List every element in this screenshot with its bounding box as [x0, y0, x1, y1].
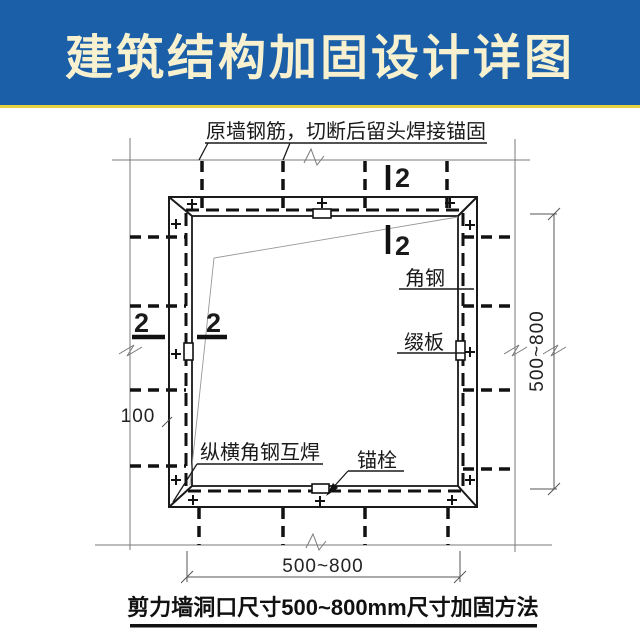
batten-plate-label: 缀板: [397, 331, 465, 354]
section-number: 2: [395, 231, 410, 261]
spacing-dim-text: 100: [121, 406, 156, 427]
section-mark-left: 2 2: [132, 308, 227, 338]
caption-text: 剪力墙洞口尺寸500~800mm尺寸加固方法: [127, 595, 538, 620]
section-number: 2: [395, 163, 410, 193]
anchor-bolt-text: 锚栓: [357, 449, 397, 472]
section-number: 2: [134, 308, 149, 338]
top-note-text: 原墙钢筋，切断后留头焊接锚固: [206, 120, 486, 143]
section-mark-top: 2 2: [388, 163, 410, 261]
angle-steel-text: 角钢: [405, 267, 445, 290]
structural-detail-drawing: 2 2 2 2 原墙钢筋，切断后留头焊接锚固 角钢 缀板 纵横角钢互焊 锚栓: [0, 108, 640, 637]
height-dim-text: 500~800: [527, 310, 548, 392]
page-title: 建筑结构加固设计详图: [65, 18, 575, 88]
top-note-label: 原墙钢筋，切断后留头焊接锚固: [199, 120, 487, 160]
drawing-caption: 剪力墙洞口尺寸500~800mm尺寸加固方法: [127, 595, 538, 628]
spacing-dimension: 100: [121, 406, 172, 427]
anchor-bolt-label: 锚栓: [326, 449, 404, 496]
width-dim-text: 500~800: [282, 556, 364, 577]
batten-plate-text: 缀板: [404, 331, 444, 354]
width-dimension: 500~800: [181, 551, 466, 583]
weld-note-text: 纵横角钢互焊: [200, 441, 320, 464]
caption-underline: [130, 624, 537, 628]
weld-note-label: 纵横角钢互焊: [173, 441, 323, 502]
section-number: 2: [206, 308, 221, 338]
height-dimension: 500~800: [527, 208, 560, 495]
title-banner: 建筑结构加固设计详图: [0, 0, 640, 108]
reinforcement-detail-svg: 2 2 2 2 原墙钢筋，切断后留头焊接锚固 角钢 缀板 纵横角钢互焊 锚栓: [0, 108, 640, 637]
